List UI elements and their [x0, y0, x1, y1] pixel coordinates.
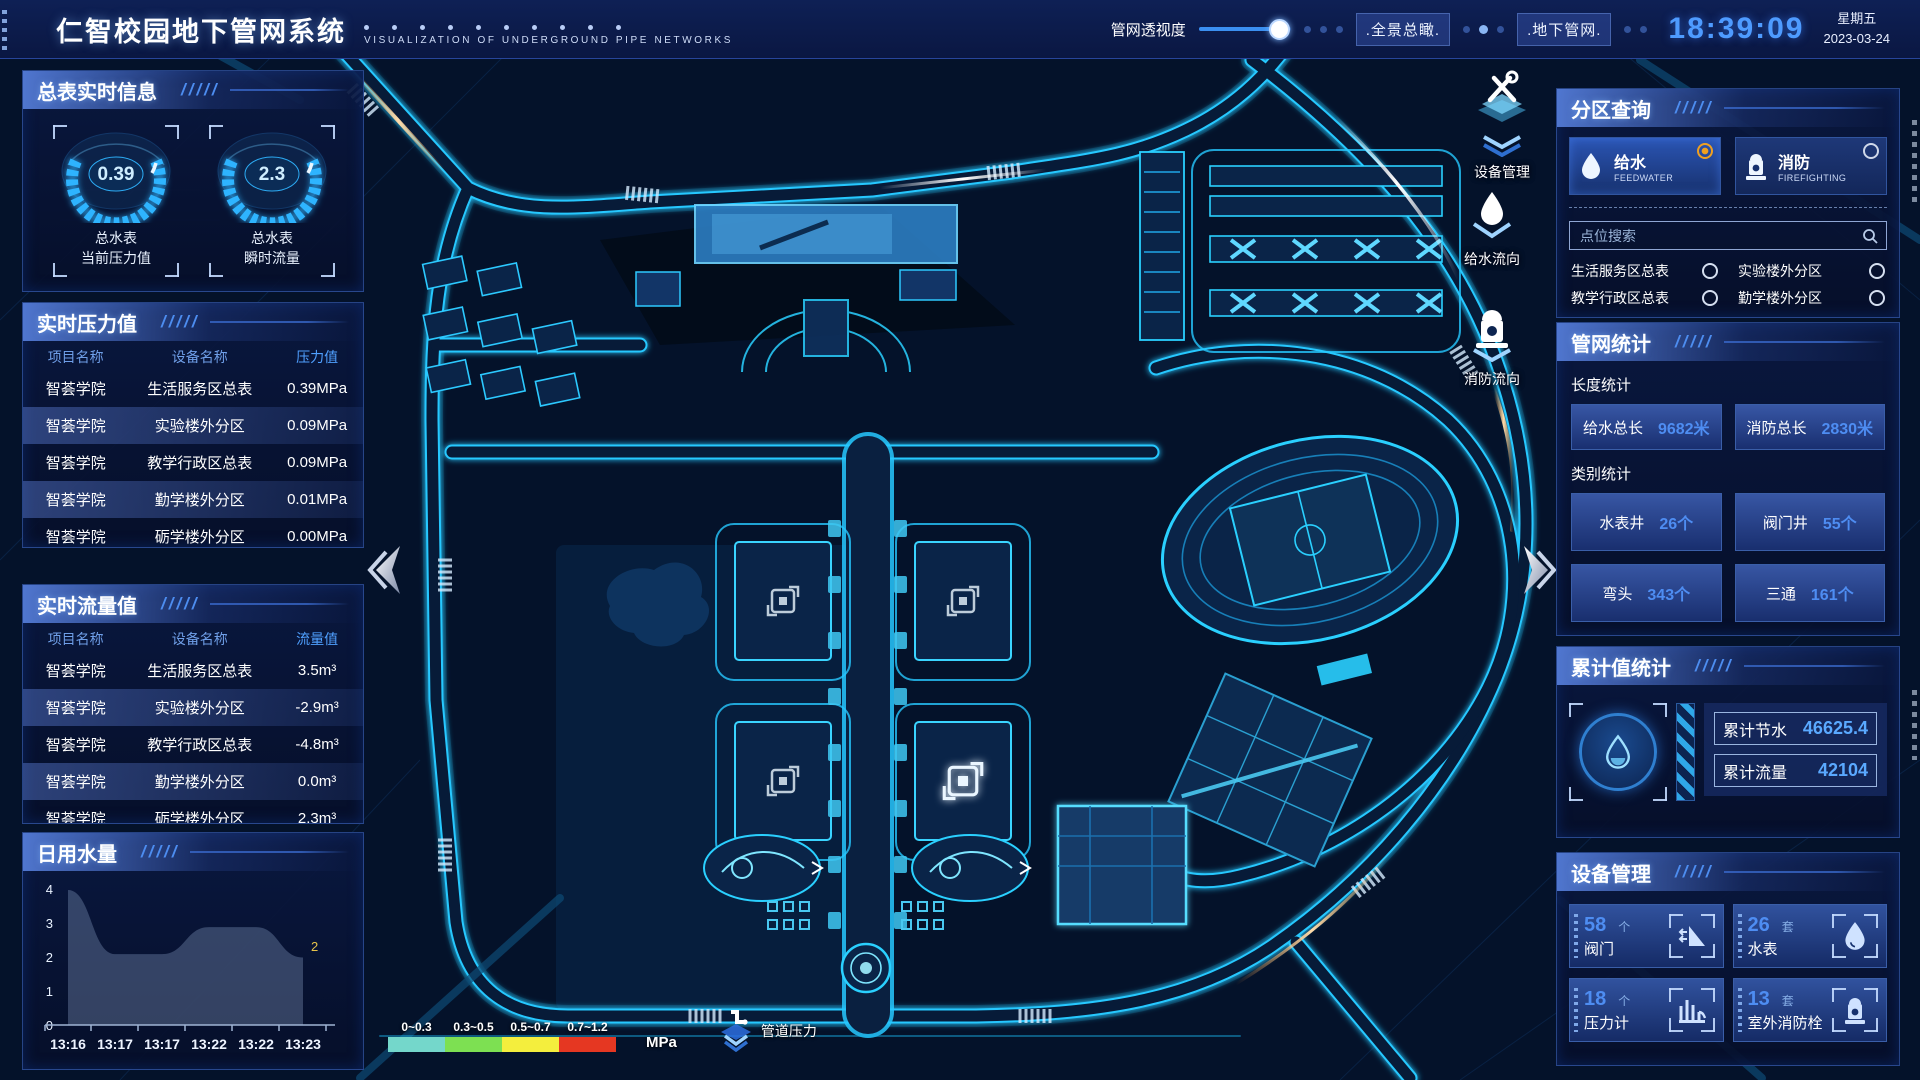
- cumulative-row: 累计流量42104: [1714, 754, 1877, 787]
- stat-tile-clipped: [1571, 635, 1722, 636]
- stat-tile-valve-wells: 阀门井55个: [1735, 493, 1886, 551]
- section-title: 日用水量: [37, 838, 117, 867]
- gauge-flow: 2.3 总水表瞬时流量: [209, 125, 335, 277]
- svg-text:13:22: 13:22: [238, 1036, 274, 1052]
- radio-icon: [1702, 263, 1718, 279]
- slash-decoration: /////: [141, 842, 180, 862]
- radio-icon: [1869, 317, 1885, 319]
- hydrant-icon: [1842, 995, 1868, 1025]
- section-title: 管网统计: [1571, 328, 1651, 357]
- pressure-gauge-icon: [1677, 996, 1707, 1024]
- radio-icon: [1869, 290, 1885, 306]
- partition-item[interactable]: 生活服务区总表: [1571, 257, 1718, 284]
- date: 2023-03-24: [1824, 29, 1891, 49]
- radio-icon: [1697, 143, 1713, 159]
- area-series: [68, 890, 303, 1025]
- slash-decoration: /////: [161, 312, 200, 332]
- section-title: 累计值统计: [1571, 652, 1671, 681]
- pressure-gauge-icon: [719, 1010, 753, 1052]
- device-tile-valves[interactable]: 58个 阀门: [1569, 904, 1724, 968]
- stat-tile-meter-wells: 水表井26个: [1571, 493, 1722, 551]
- map-pan-left-arrow[interactable]: [366, 542, 406, 603]
- gauge-pressure: 0.39 总水表当前压力值: [53, 125, 179, 277]
- chevron-down-icon: [1480, 135, 1524, 157]
- edge-decoration: [2, 10, 7, 52]
- section-title: 实时压力值: [37, 308, 137, 337]
- slash-decoration: /////: [1675, 862, 1714, 882]
- slash-decoration: /////: [1675, 332, 1714, 352]
- table-row[interactable]: 智荟学院教学行政区总表-4.8m³: [23, 726, 363, 763]
- hydrant-icon: [1744, 151, 1768, 181]
- edge-decoration: [1912, 690, 1917, 760]
- svg-text:13:17: 13:17: [97, 1036, 133, 1052]
- dot-separator: [1463, 25, 1504, 34]
- partition-item[interactable]: 勤学楼外分区: [1738, 284, 1885, 311]
- svg-text:13:23: 13:23: [285, 1036, 321, 1052]
- svg-text:2.3: 2.3: [259, 164, 285, 185]
- dot-separator: [1304, 26, 1343, 33]
- dot-separator: [1624, 26, 1647, 33]
- divider: [1569, 207, 1887, 208]
- water-drop-icon: [1578, 151, 1604, 181]
- legend-unit: MPa: [646, 1034, 677, 1051]
- svg-text:3: 3: [46, 916, 53, 931]
- header: 仁智校园地下管网系统 VISUALIZATION OF UNDERGROUND …: [0, 0, 1920, 59]
- app-title: 仁智校园地下管网系统: [56, 10, 346, 49]
- hatch-decoration: [1676, 703, 1695, 801]
- svg-text:0.39: 0.39: [98, 164, 135, 185]
- water-badge: [1569, 703, 1667, 801]
- device-tile-water-meters[interactable]: 26套 水表: [1733, 904, 1888, 968]
- radio-icon: [1863, 143, 1879, 159]
- map-legend: 0~0.3 0.3~0.5 0.5~0.7 0.7~1.2 MPa 管道压力: [388, 1010, 817, 1052]
- section-title: 设备管理: [1571, 858, 1651, 887]
- table-header: 项目名称设备名称压力值: [23, 344, 363, 370]
- hydrant-icon: [1465, 306, 1519, 364]
- tool-device-management[interactable]: 设备管理: [1454, 66, 1550, 182]
- stat-tile-tees: 三通161个: [1735, 564, 1886, 622]
- clock-time: 18:39:09: [1668, 12, 1804, 46]
- pipe-opacity-slider[interactable]: [1199, 27, 1291, 31]
- table-row[interactable]: 智荟学院勤学楼外分区0.01MPa: [23, 481, 363, 518]
- legend-range: 0~0.3: [388, 1020, 445, 1052]
- slash-decoration: /////: [1675, 98, 1714, 118]
- slash-decoration: /////: [161, 594, 200, 614]
- panel-daily-water: 日用水量///// 4 3 2 1 0 13:16 13:17 13:17 13…: [22, 832, 364, 1070]
- edge-decoration: [1912, 120, 1917, 208]
- clock-date: 星期五 2023-03-24: [1824, 9, 1891, 49]
- legend-range: 0.3~0.5: [445, 1020, 502, 1052]
- partition-item[interactable]: 宿舍区泵房: [1738, 311, 1885, 318]
- svg-text:13:16: 13:16: [50, 1036, 86, 1052]
- pipe-opacity-label: 管网透视度: [1111, 19, 1186, 40]
- search-box[interactable]: [1569, 221, 1887, 250]
- svg-text:1: 1: [46, 984, 53, 999]
- radio-icon: [1869, 263, 1885, 279]
- slash-decoration: /////: [181, 80, 220, 100]
- partition-item[interactable]: 实验楼外分区: [1738, 257, 1885, 284]
- radio-icon: [1702, 290, 1718, 306]
- stat-tile-clipped: [1735, 635, 1886, 636]
- device-tile-pressure-gauges[interactable]: 18个 压力计: [1569, 978, 1724, 1042]
- panel-meter-realtime: 总表实时信息///// 0.39 总水表当前压力值 2.3 总水表瞬时流量: [22, 70, 364, 292]
- panel-pipe-statistics: 管网统计///// 长度统计 给水总长9682米 消防总长2830米 类别统计 …: [1556, 322, 1900, 636]
- legend-range: 0.7~1.2: [559, 1020, 616, 1052]
- search-input[interactable]: [1578, 227, 1862, 245]
- table-row[interactable]: 智荟学院生活服务区总表3.5m³: [23, 652, 363, 689]
- radio-icon: [1702, 317, 1718, 319]
- table-row[interactable]: 智荟学院实验楼外分区0.09MPa: [23, 407, 363, 444]
- wrench-icon: [1470, 66, 1534, 130]
- section-title: 总表实时信息: [37, 76, 157, 105]
- panel-cumulative-stats: 累计值统计///// 累计节水46625.4 累计流量42104: [1556, 646, 1900, 838]
- tab-feedwater[interactable]: 给水FEEDWATER: [1569, 137, 1721, 195]
- length-stats-label: 长度统计: [1571, 374, 1885, 395]
- svg-text:13:17: 13:17: [144, 1036, 180, 1052]
- legend-range: 0.5~0.7: [502, 1020, 559, 1052]
- search-icon[interactable]: [1862, 228, 1878, 244]
- slider-knob[interactable]: [1269, 19, 1290, 40]
- slash-decoration: /////: [1695, 656, 1734, 676]
- panel-partition-query: 分区查询///// 给水FEEDWATER 消防FIREFIGHTING 生活服…: [1556, 88, 1900, 318]
- svg-text:4: 4: [46, 882, 53, 897]
- pipe-pressure-label: 管道压力: [761, 1021, 817, 1041]
- section-title: 实时流量值: [37, 590, 137, 619]
- svg-text:13:22: 13:22: [191, 1036, 227, 1052]
- tool-fire-flow[interactable]: 消防流向: [1444, 306, 1540, 389]
- stat-tile-fire-length: 消防总长2830米: [1735, 404, 1886, 450]
- end-value-label: 2: [311, 939, 318, 954]
- table-row[interactable]: 智荟学院勤学楼外分区0.0m³: [23, 763, 363, 800]
- slider-fill: [1199, 27, 1274, 31]
- tool-feedwater-flow[interactable]: 给水流向: [1444, 188, 1540, 269]
- water-meter-icon: [1842, 920, 1868, 952]
- water-drop-icon: [1465, 188, 1519, 244]
- table-row[interactable]: 智荟学院生活服务区总表0.39MPa: [23, 370, 363, 407]
- panel-realtime-pressure: 实时压力值///// 项目名称设备名称压力值 智荟学院生活服务区总表0.39MP…: [22, 302, 364, 548]
- section-title: 分区查询: [1571, 94, 1651, 123]
- app-subtitle: VISUALIZATION OF UNDERGROUND PIPE NETWOR…: [364, 35, 733, 46]
- gauge-label: 总水表瞬时流量: [209, 228, 335, 269]
- device-tile-outdoor-hydrants[interactable]: 13套 室外消防栓: [1733, 978, 1888, 1042]
- gauge-label: 总水表当前压力值: [53, 228, 179, 269]
- stat-tile-elbows: 弯头343个: [1571, 564, 1722, 622]
- weekday: 星期五: [1824, 9, 1891, 29]
- daily-water-chart: 4 3 2 1 0 13:16 13:17 13:17 13:22 13:22 …: [23, 875, 353, 1060]
- water-drop-icon: [1603, 734, 1633, 770]
- svg-text:2: 2: [46, 950, 53, 965]
- table-row[interactable]: 智荟学院教学行政区总表0.09MPa: [23, 444, 363, 481]
- table-header: 项目名称设备名称流量值: [23, 626, 363, 652]
- stat-tile-feedwater-length: 给水总长9682米: [1571, 404, 1722, 450]
- category-stats-label: 类别统计: [1571, 463, 1885, 484]
- panorama-button[interactable]: .全景总瞰.: [1356, 13, 1450, 46]
- tab-firefighting[interactable]: 消防FIREFIGHTING: [1735, 137, 1887, 195]
- valve-icon: [1677, 922, 1707, 950]
- dot-separator: [364, 25, 733, 30]
- pipe-pressure-toggle[interactable]: 管道压力: [719, 1010, 817, 1052]
- table-row[interactable]: 智荟学院砺学楼外分区0.00MPa: [23, 518, 363, 548]
- table-row[interactable]: 智荟学院实验楼外分区-2.9m³: [23, 689, 363, 726]
- panel-realtime-flow: 实时流量值///// 项目名称设备名称流量值 智荟学院生活服务区总表3.5m³ …: [22, 584, 364, 824]
- cumulative-row: 累计节水46625.4: [1714, 712, 1877, 745]
- gauge-dial: 2.3: [210, 127, 334, 223]
- underground-pipes-button[interactable]: .地下管网.: [1517, 13, 1611, 46]
- partition-item[interactable]: 砺学楼外分区: [1571, 311, 1718, 318]
- gauge-dial: 0.39: [54, 127, 178, 223]
- panel-device-management: 设备管理///// 58个 阀门 26套 水表 18个 压力计: [1556, 852, 1900, 1066]
- partition-item[interactable]: 教学行政区总表: [1571, 284, 1718, 311]
- map-pan-right-arrow[interactable]: [1518, 542, 1558, 603]
- table-row[interactable]: 智荟学院砺学楼外分区2.3m³: [23, 800, 363, 824]
- cumulative-values: 累计节水46625.4 累计流量42104: [1704, 703, 1887, 796]
